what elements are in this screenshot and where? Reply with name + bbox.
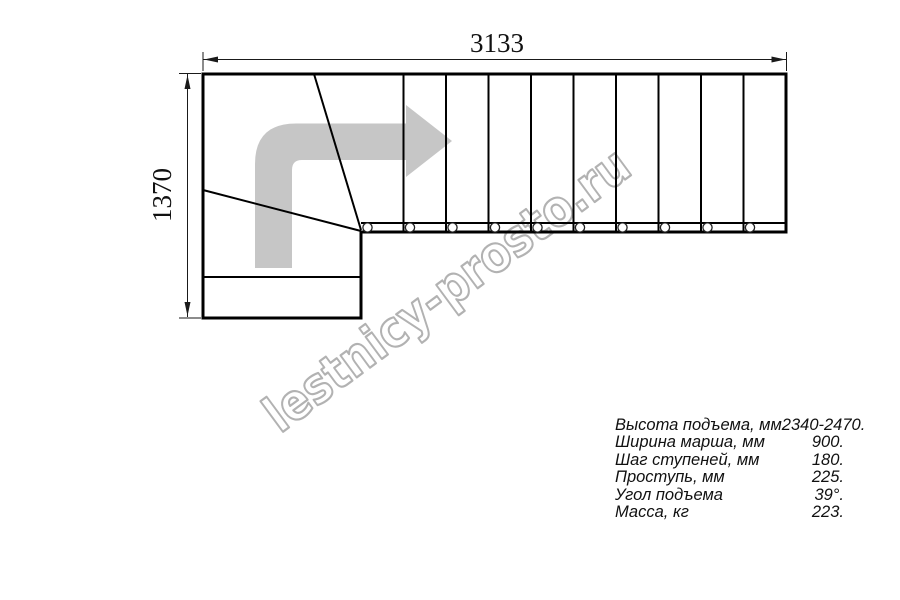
baluster-circle [660,223,669,232]
spec-label: Ширина марша, мм [615,434,765,451]
spec-label: Шаг ступеней, мм [615,452,759,469]
stair-plan-canvas: lestnicy-prosto.ru [0,0,900,600]
spec-value: 223. [812,504,844,521]
dim-arrow-right-icon [772,57,786,63]
spec-row: Проступь, мм 225. [615,469,844,486]
height-dimension-group: 1370 [147,74,201,319]
spec-label: Высота подъема, мм [615,417,782,434]
spec-table: Высота подъема, мм 2340-2470. Ширина мар… [615,417,844,521]
spec-row: Шаг ступеней, мм 180. [615,452,844,469]
baluster-circle [448,223,457,232]
baluster-circle [533,223,542,232]
spec-value: 900. [812,434,844,451]
baluster-circle [745,223,754,232]
spec-value: 180. [812,452,844,469]
spec-value: 225. [812,469,844,486]
stair-direction-arrow-icon [255,105,452,268]
dim-arrow-up-icon [185,75,191,89]
spec-row: Угол подъема 39°. [615,487,844,504]
dim-arrow-left-icon [204,57,218,63]
baluster-circle [703,223,712,232]
baluster-circle [618,223,627,232]
baluster-circle [575,223,584,232]
spec-value: 2340-2470. [782,417,866,434]
baluster-circle [405,223,414,232]
width-dimension-group: 3133 [203,28,787,71]
spec-value: 39°. [814,487,844,504]
height-dimension-label: 1370 [147,168,177,222]
baluster-circle [363,223,372,232]
spec-row: Масса, кг 223. [615,504,844,521]
spec-row: Ширина марша, мм 900. [615,434,844,451]
width-dimension-label: 3133 [470,28,524,58]
spec-label: Масса, кг [615,504,689,521]
spec-label: Проступь, мм [615,469,725,486]
spec-label: Угол подъема [615,487,723,504]
spec-row: Высота подъема, мм 2340-2470. [615,417,844,434]
baluster-circle [490,223,499,232]
dim-arrow-down-icon [185,302,191,316]
